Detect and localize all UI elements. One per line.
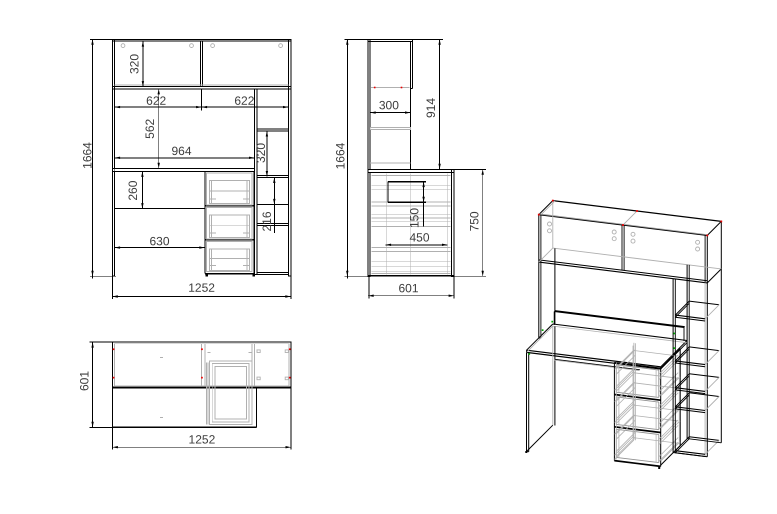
svg-text:601: 601 bbox=[77, 371, 91, 391]
svg-text:1252: 1252 bbox=[189, 432, 216, 446]
svg-text:216: 216 bbox=[260, 211, 274, 231]
svg-text:300: 300 bbox=[379, 98, 399, 112]
svg-text:630: 630 bbox=[149, 234, 169, 248]
svg-text:260: 260 bbox=[126, 180, 140, 200]
svg-text:1664: 1664 bbox=[81, 142, 95, 169]
svg-text:622: 622 bbox=[146, 94, 166, 108]
svg-text:622: 622 bbox=[234, 94, 254, 108]
svg-text:1664: 1664 bbox=[334, 142, 348, 169]
svg-text:150: 150 bbox=[408, 208, 422, 228]
svg-text:601: 601 bbox=[398, 281, 418, 295]
svg-text:320: 320 bbox=[254, 143, 268, 163]
svg-text:320: 320 bbox=[128, 54, 142, 74]
svg-text:964: 964 bbox=[171, 144, 191, 158]
svg-text:450: 450 bbox=[409, 230, 429, 244]
svg-text:1252: 1252 bbox=[188, 281, 215, 295]
svg-text:914: 914 bbox=[424, 98, 438, 118]
svg-text:750: 750 bbox=[467, 211, 481, 231]
svg-text:562: 562 bbox=[143, 118, 157, 138]
